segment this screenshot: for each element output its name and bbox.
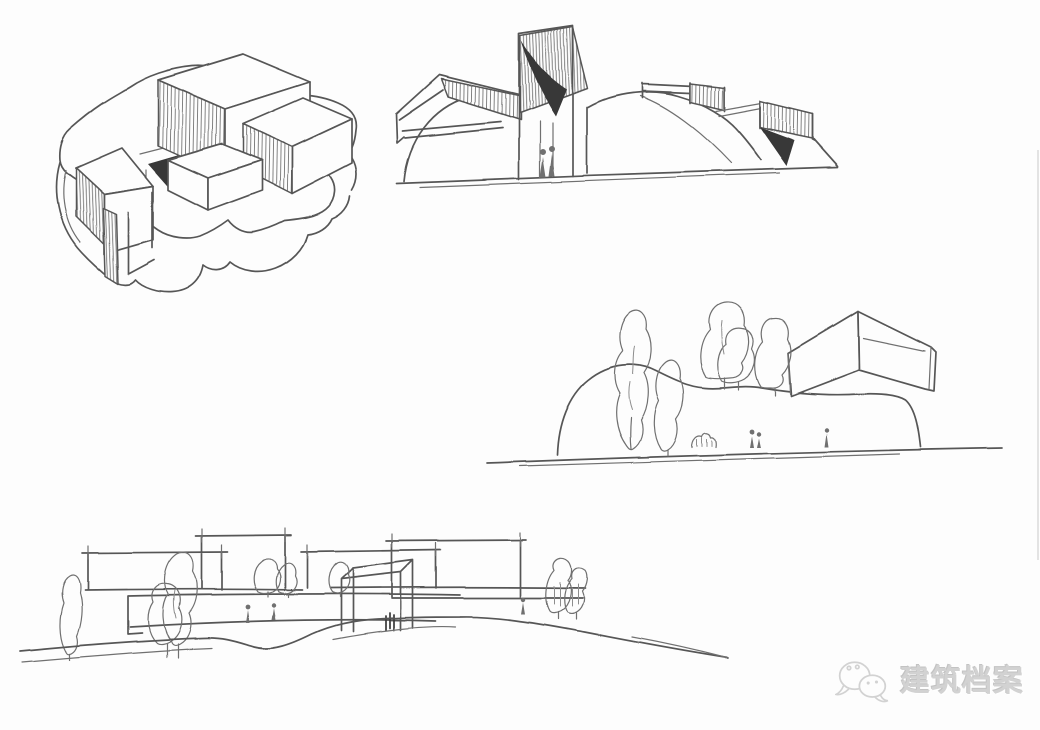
bubble-eye: [875, 680, 878, 683]
left-box-underside-lines: [402, 122, 503, 138]
sketch-terraced-slabs-elevation: [20, 528, 728, 662]
ground-line: [487, 448, 1002, 463]
house-door-scribble: [386, 613, 394, 630]
round-tree-canopies: [700, 302, 791, 388]
box-d-hatched-fin-wall: [103, 208, 118, 284]
ground-line: [397, 167, 838, 183]
sketch-hill-cantilever-elevation: [487, 302, 1002, 466]
poplar-tree-canopies: [615, 310, 684, 451]
human-figures: [750, 428, 830, 448]
rolling-ground-lines: [20, 617, 728, 658]
watermark: 建筑档案: [835, 658, 1024, 706]
drawing-layer: [20, 26, 1002, 662]
middle-arched-roof: [588, 92, 761, 160]
bubble-eye: [867, 681, 870, 684]
watermark-text: 建筑档案: [900, 667, 1024, 697]
bush-hatch-ticks: [697, 437, 712, 446]
cantilever-left-face: [788, 311, 859, 396]
sketch-axonometric-massing: [57, 54, 357, 292]
bush-cluster: [692, 433, 716, 447]
human-figures: [540, 146, 555, 177]
tree-canopies: [60, 552, 586, 654]
corner-ticks: [88, 528, 520, 559]
tree-inner-texture: [629, 320, 724, 410]
mound-outline: [557, 365, 921, 455]
sketch-arched-roofs-elevation: [396, 26, 838, 187]
sketch-page: 建筑档案: [0, 0, 1040, 730]
architectural-concept-sketches: [0, 0, 1040, 730]
wechat-chat-bubbles-icon: [835, 658, 891, 706]
chat-bubble-small: [859, 675, 885, 697]
ridge-beam-hatched-panel: [690, 84, 724, 110]
